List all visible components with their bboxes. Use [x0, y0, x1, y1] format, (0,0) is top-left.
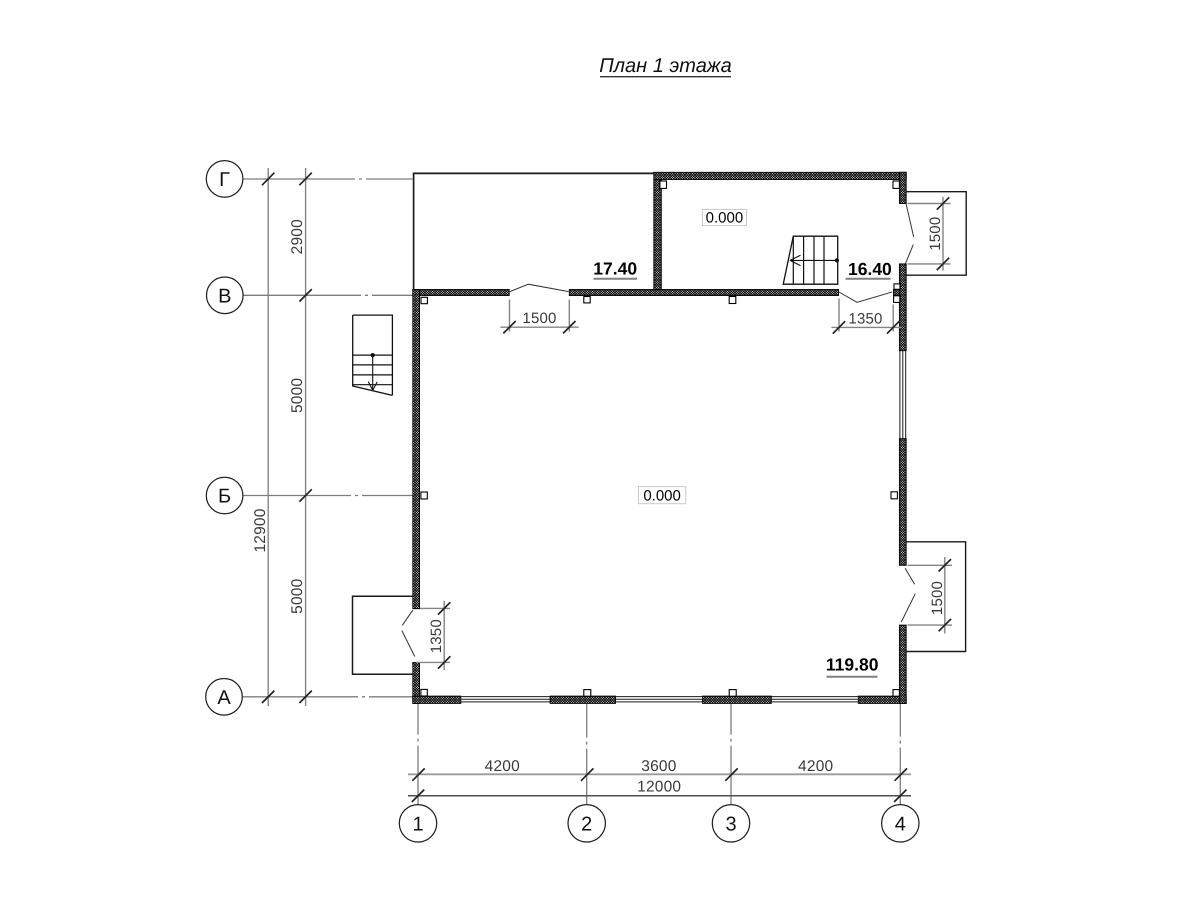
svg-text:4200: 4200 — [798, 758, 833, 775]
svg-text:17.40: 17.40 — [593, 258, 637, 278]
svg-text:1500: 1500 — [929, 581, 946, 615]
svg-text:3600: 3600 — [641, 758, 676, 775]
svg-text:5000: 5000 — [289, 578, 306, 613]
svg-text:Б: Б — [218, 486, 231, 508]
svg-text:Г: Г — [219, 169, 230, 191]
svg-text:5000: 5000 — [289, 378, 306, 413]
svg-text:4: 4 — [895, 813, 906, 835]
svg-text:0.000: 0.000 — [643, 487, 681, 504]
svg-text:А: А — [217, 687, 231, 709]
svg-text:План 1 этажа: План 1 этажа — [599, 55, 731, 77]
svg-text:12900: 12900 — [252, 508, 269, 552]
svg-text:4200: 4200 — [485, 758, 520, 775]
svg-text:1350: 1350 — [428, 619, 445, 653]
svg-text:3: 3 — [725, 813, 736, 835]
svg-text:1: 1 — [412, 813, 423, 835]
svg-text:2: 2 — [581, 813, 592, 835]
svg-text:1350: 1350 — [848, 310, 882, 327]
svg-text:2900: 2900 — [289, 219, 306, 254]
svg-text:12000: 12000 — [637, 778, 681, 795]
svg-text:1500: 1500 — [927, 217, 944, 251]
svg-text:1500: 1500 — [522, 310, 556, 327]
svg-text:В: В — [218, 285, 231, 307]
svg-text:0.000: 0.000 — [706, 210, 744, 227]
svg-text:119.80: 119.80 — [826, 655, 879, 675]
svg-text:16.40: 16.40 — [848, 259, 892, 279]
